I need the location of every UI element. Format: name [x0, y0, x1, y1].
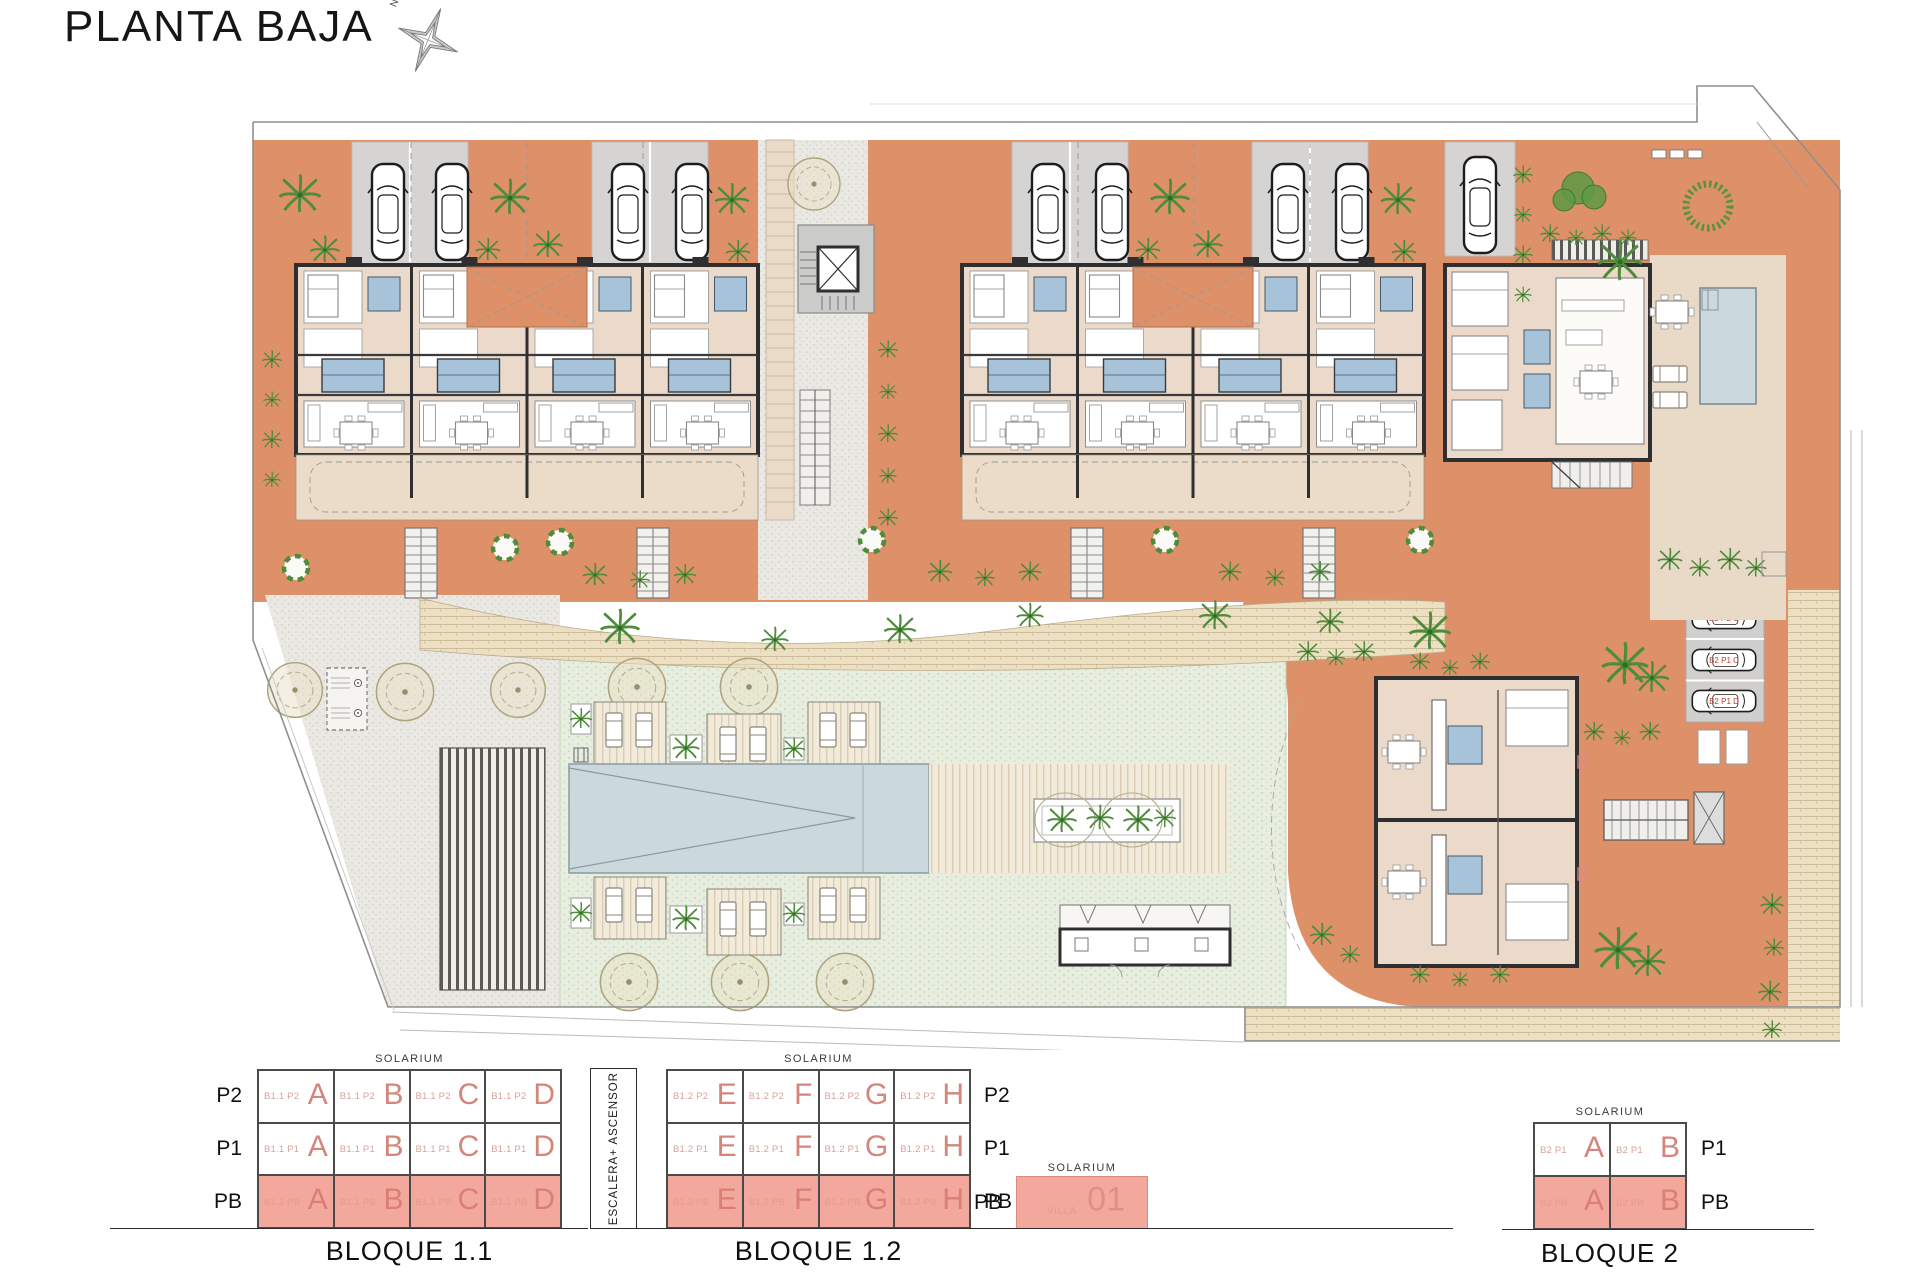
bloque-1-2-building: [962, 257, 1424, 455]
unit-code: B1.2 P1: [900, 1144, 935, 1155]
unit-code: B1.2 P1: [825, 1144, 860, 1155]
bloque-1-1-name: BLOQUE 1.1: [257, 1236, 562, 1267]
unit-letter: E: [717, 1183, 737, 1217]
unit-cell-b1-2-pb-e: B1.2 PBE: [667, 1175, 743, 1228]
unit-code: B1.2 PB: [825, 1197, 861, 1208]
unit-letter: B: [1660, 1131, 1680, 1165]
unit-code: B1.2 P2: [825, 1091, 860, 1102]
unit-code: B1.2 P2: [673, 1091, 708, 1102]
central-corridor: [758, 140, 912, 600]
unit-code: B1.1 P1: [491, 1144, 526, 1155]
sun-lounger-icon: [606, 713, 622, 747]
unit-code: B1.1 P2: [264, 1091, 299, 1102]
unit-cell-b1-1-p1-c: B1.1 P1C: [410, 1123, 486, 1176]
villa-pool: [1700, 288, 1756, 404]
unit-letter: F: [794, 1078, 812, 1112]
unit-letter: H: [942, 1130, 964, 1164]
plant-ring-icon: [284, 556, 308, 580]
diagram-baseline: [1502, 1229, 1814, 1230]
floor-label-pb: PB: [1691, 1176, 1745, 1230]
unit-letter: B: [383, 1078, 403, 1112]
unit-code: B1.1 P1: [264, 1144, 299, 1155]
community-pool: [569, 748, 929, 873]
unit-letter: E: [717, 1130, 737, 1164]
plant-ring-icon: [493, 536, 517, 560]
unit-code: B1.2 P2: [900, 1091, 935, 1102]
floor-label-p1: P1: [1691, 1122, 1745, 1176]
bloque-2-stairs: [1604, 792, 1724, 844]
car-icon: [1268, 164, 1308, 260]
sun-lounger-icon: [606, 888, 622, 922]
unit-code: B1.2 PB: [749, 1197, 785, 1208]
unit-cell-b2-p1-a: B2 P1A: [1534, 1123, 1610, 1176]
villa-building: [1445, 265, 1650, 460]
bloque-1-2-name: BLOQUE 1.2: [666, 1236, 971, 1267]
corridor-stairs: [800, 390, 830, 505]
unit-letter: F: [794, 1130, 812, 1164]
unit-code: B1.1 P2: [416, 1091, 451, 1102]
diagram-baseline: [593, 1228, 1453, 1229]
plant-ring-icon: [548, 530, 572, 554]
exterior-stairs: [637, 528, 669, 598]
sun-lounger-icon: [750, 727, 766, 761]
stairs-elevator-label: ESCALERA+ ASCENSOR: [608, 1072, 620, 1225]
unit-letter: B: [1660, 1184, 1680, 1218]
unit-cell-b1-2-p2-g: B1.2 P2G: [819, 1070, 895, 1123]
solarium-label: SOLARIUM: [666, 1053, 971, 1065]
unit-cell-b1-1-p2-d: B1.1 P2D: [485, 1070, 561, 1123]
bloque-1-2-diagram: B1.2 P2EB1.2 P2FB1.2 P2GB1.2 P2HB1.2 P1E…: [666, 1069, 971, 1229]
car-icon: [1028, 164, 1068, 260]
car-icon: [1332, 164, 1372, 260]
villa-number: 01: [1087, 1181, 1125, 1220]
planta-baja-sheet: PLANTA BAJA: [0, 0, 1920, 1280]
unit-letter: F: [794, 1183, 812, 1217]
sun-lounger-icon: [820, 888, 836, 922]
villa-code: VILLA: [1047, 1206, 1077, 1217]
unit-letter: C: [458, 1183, 480, 1217]
unit-code: B1.1 P2: [340, 1091, 375, 1102]
unit-cell-b1-2-p1-f: B1.2 P1F: [743, 1123, 819, 1176]
car-icon: [608, 164, 648, 260]
unit-code: B1.1 P1: [340, 1144, 375, 1155]
unit-letter: A: [308, 1183, 328, 1217]
unit-letter: B: [383, 1130, 403, 1164]
unit-letter: A: [1584, 1184, 1604, 1218]
stairs-elevator-box: ESCALERA+ ASCENSOR: [590, 1068, 637, 1229]
unit-cell-b2-pb-a: B2 PBA: [1534, 1176, 1610, 1229]
unit-letter: G: [865, 1078, 888, 1112]
unit-letter: E: [717, 1078, 737, 1112]
diagram-baseline: [110, 1228, 588, 1229]
unit-cell-b2-pb-b: B2 PBB: [1610, 1176, 1686, 1229]
unit-code: B1.1 P2: [491, 1091, 526, 1102]
plant-ring-icon: [860, 528, 884, 552]
parking-spot-label: B2 P1 D: [1709, 697, 1739, 706]
sun-lounger-icon: [750, 902, 766, 936]
exterior-stairs: [405, 528, 437, 598]
sun-lounger-icon: [850, 888, 866, 922]
site-plan-drawing: B2 PB A B2 PB B B2 P1 C B2 P1 D: [0, 0, 1920, 1050]
unit-letter: D: [533, 1183, 555, 1217]
unit-cell-b1-2-p2-h: B1.2 P2H: [894, 1070, 970, 1123]
plant-ring-icon: [1408, 528, 1432, 552]
solarium-label: SOLARIUM: [1533, 1106, 1687, 1118]
unit-cell-b1-1-p1-d: B1.1 P1D: [485, 1123, 561, 1176]
unit-code: B1.1 PB: [416, 1197, 452, 1208]
floor-labels-bloque-1-1: P2P1PB: [196, 1069, 250, 1229]
bloque-1-1-diagram: B1.1 P2AB1.1 P2BB1.1 P2CB1.1 P2DB1.1 P1A…: [257, 1069, 562, 1229]
unit-cell-b1-1-p2-b: B1.1 P2B: [334, 1070, 410, 1123]
unit-cell-b1-2-p1-h: B1.2 P1H: [894, 1123, 970, 1176]
car-icon: [368, 164, 408, 260]
unit-letter: D: [533, 1078, 555, 1112]
unit-cell-b1-1-pb-b: B1.1 PBB: [334, 1175, 410, 1228]
unit-cell-b1-1-p2-a: B1.1 P2A: [258, 1070, 334, 1123]
compass-north-label: N: [388, 0, 401, 9]
car-icon: [1092, 164, 1132, 260]
floor-label-pb: PB: [196, 1176, 250, 1229]
sun-lounger-icon: [636, 713, 652, 747]
unit-letter: H: [942, 1078, 964, 1112]
unit-letter: C: [458, 1130, 480, 1164]
unit-code: B2 P1: [1616, 1144, 1643, 1155]
exterior-stairs: [1303, 528, 1335, 598]
car-icon: [672, 164, 712, 260]
unit-cell-b1-1-p2-c: B1.1 P2C: [410, 1070, 486, 1123]
unit-letter: A: [308, 1078, 328, 1112]
solarium-label: SOLARIUM: [257, 1053, 562, 1065]
bloque-2-diagram: B2 P1AB2 P1BB2 PBAB2 PBB: [1533, 1122, 1687, 1230]
unit-cell-b1-2-pb-f: B1.2 PBF: [743, 1175, 819, 1228]
unit-letter: G: [865, 1183, 888, 1217]
plan-legend: [327, 668, 367, 730]
elevator-core: [798, 225, 874, 313]
floor-label-p1: P1: [196, 1122, 250, 1175]
tree-icon: [788, 158, 840, 210]
car-icon: [432, 164, 472, 260]
villa-entry-stairs: [1552, 462, 1632, 488]
sun-lounger-icon: [720, 902, 736, 936]
unit-cell-b1-2-p1-e: B1.2 P1E: [667, 1123, 743, 1176]
unit-cell-b1-1-p1-a: B1.1 P1A: [258, 1123, 334, 1176]
unit-code: B1.1 PB: [264, 1197, 300, 1208]
boardwalk-planter: [1034, 793, 1180, 847]
unit-letter: G: [865, 1130, 888, 1164]
unit-cell-b1-1-pb-c: B1.1 PBC: [410, 1175, 486, 1228]
unit-letter: C: [458, 1078, 480, 1112]
sun-lounger-icon: [850, 713, 866, 747]
unit-code: B2 PB: [1616, 1197, 1644, 1208]
bloque-1-1-building: [296, 257, 758, 455]
exterior-stairs: [1071, 528, 1103, 598]
compass-icon: N: [369, 0, 471, 84]
unit-letter: D: [533, 1130, 555, 1164]
unit-letter: A: [308, 1130, 328, 1164]
unit-cell-b1-1-p1-b: B1.1 P1B: [334, 1123, 410, 1176]
unit-code: B2 P1: [1540, 1144, 1567, 1155]
floor-label-p2: P2: [974, 1069, 1028, 1122]
sun-lounger-icon: [636, 888, 652, 922]
unit-code: B1.1 P1: [416, 1144, 451, 1155]
paved-walkway: [420, 598, 1445, 671]
unit-cell-b1-1-pb-a: B1.1 PBA: [258, 1175, 334, 1228]
unit-letter: A: [1584, 1131, 1604, 1165]
pergola: [440, 748, 545, 990]
villa-01-cell: VILLA 01: [1016, 1176, 1148, 1229]
car-icon: [1460, 157, 1500, 253]
plant-ring-icon: [1153, 528, 1177, 552]
floor-label-villa: PB: [950, 1176, 1002, 1229]
unit-code: B1.2 P1: [749, 1144, 784, 1155]
unit-code: B1.2 PB: [673, 1197, 709, 1208]
unit-code: B1.2 PB: [900, 1197, 936, 1208]
floor-label-p2: P2: [196, 1069, 250, 1122]
unit-code: B2 PB: [1540, 1197, 1568, 1208]
unit-cell-b1-2-pb-g: B1.2 PBG: [819, 1175, 895, 1228]
bloque-2-name: BLOQUE 2: [1510, 1238, 1710, 1269]
solarium-label: SOLARIUM: [1016, 1162, 1148, 1174]
unit-cell-b1-2-p2-e: B1.2 P2E: [667, 1070, 743, 1123]
sun-lounger-icon: [720, 727, 736, 761]
unit-code: B1.2 P2: [749, 1091, 784, 1102]
unit-cell-b1-2-p2-f: B1.2 P2F: [743, 1070, 819, 1123]
unit-code: B1.1 PB: [491, 1197, 527, 1208]
shower-block: [1060, 905, 1230, 977]
unit-cell-b1-1-pb-d: B1.1 PBD: [485, 1175, 561, 1228]
unit-cell-b2-p1-b: B2 P1B: [1610, 1123, 1686, 1176]
unit-code: B1.2 P1: [673, 1144, 708, 1155]
floor-labels-bloque-2: P1PB: [1691, 1122, 1745, 1230]
unit-cell-b1-2-p1-g: B1.2 P1G: [819, 1123, 895, 1176]
sun-lounger-icon: [820, 713, 836, 747]
unit-letter: B: [383, 1183, 403, 1217]
unit-code: B1.1 PB: [340, 1197, 376, 1208]
parking-spot-label: B2 P1 C: [1709, 656, 1739, 665]
